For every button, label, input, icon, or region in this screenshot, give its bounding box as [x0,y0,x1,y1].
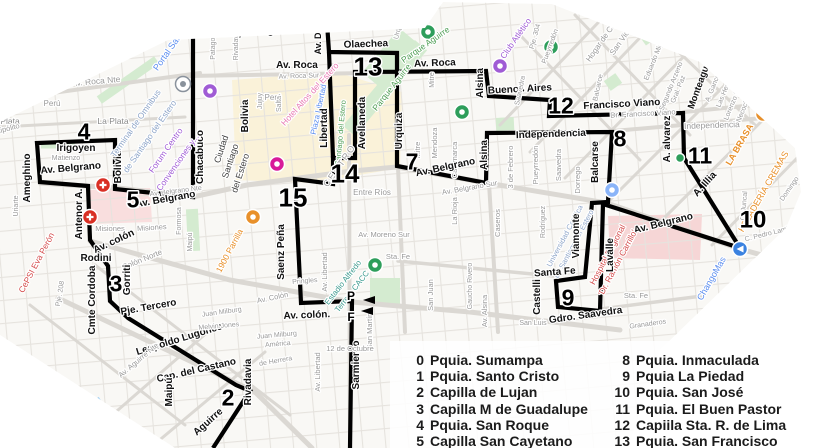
legend-item-number: 3 [398,401,424,417]
legend-item: 3Capilla M de Guadalupe [398,401,588,417]
route-stop-2[interactable]: 2 [222,384,235,410]
route-stop-10[interactable]: 10 [740,207,767,234]
poi-marker[interactable] [763,254,778,269]
poi-marker[interactable] [605,183,620,198]
route-stop-9[interactable]: 9 [562,284,575,310]
street-label: Av. colón. [283,309,330,322]
legend-item: 4Pquia. San Roque [398,417,588,433]
legend-item-name: Pquia. Inmaculada [636,352,759,368]
street-label: Mendoza [430,127,439,159]
street-label: Rodríguez [540,205,547,238]
poi-icon [358,6,373,21]
poi-dot-icon [767,258,773,264]
legend-item-name: Pquia. El Buen Pastor [636,401,781,417]
street-label: A. alvarez [662,116,673,163]
street-label: Urquiza [394,112,405,149]
legend-item-number: 0 [398,352,424,368]
street-label: Matienzo [52,155,81,162]
street-label: Rodini [80,253,111,264]
street-label: San Juan [426,279,435,311]
street-label: Antenor A. [74,188,85,239]
street-label: Patagonia [210,28,217,60]
legend-item: 8Pquia. Inmaculada [604,352,786,368]
street-label: Independencia [684,119,740,131]
legend-item-number: 2 [398,384,424,400]
street-label: Salta [276,96,283,112]
street-label: La Plata [97,116,128,126]
street-label: Av. Libertad [313,352,322,391]
legend: 0Pquia. Sumampa1Pquia. Santo Cristo2Capi… [398,352,818,448]
route-stop-5[interactable]: 5 [127,186,140,212]
street-label: Av. Roca [276,60,318,71]
legend-column-left: 0Pquia. Sumampa1Pquia. Santo Cristo2Capi… [398,352,588,448]
poi-marker[interactable] [203,84,218,99]
street-label: Rivadavia [233,30,240,61]
street-label: Lavalle [605,238,616,272]
legend-item-name: Capilla San Cayetano [430,433,572,448]
parada-p-label: P [347,289,355,303]
legend-item: 2Capilla de Lujan [398,384,588,400]
street-label: Ameghino [22,154,33,203]
legend-item: 10Pquia. San José [604,384,786,400]
map-screenshot: Ejto. ArgentinoOlaecheaAv. RocaAv. Roca … [0,0,820,448]
poi-marker[interactable] [246,210,261,225]
street-label: Av. Alsina [480,294,489,327]
street-label: Bolivia [240,99,251,132]
street-label: 3 de Febrero [506,146,515,189]
street-label: Saavedra [554,148,563,181]
street-label: Maipú [187,232,194,251]
legend-item-number: 1 [398,368,424,384]
street-label: Libertad [319,108,330,147]
legend-item-name: Capilla de Lujan [430,384,537,400]
street-label: Av. D. d. [313,19,323,54]
route-stop-12[interactable]: 12 [548,92,574,118]
street-label: Formosa [176,207,183,235]
street-label: Av. Libertad [320,252,329,291]
street-label: Av. Roca [414,57,456,69]
poi-dot-icon [274,161,280,167]
street-label: Castelli [532,279,543,315]
legend-item: 0Pquia. Sumampa [398,352,588,368]
poi-marker[interactable] [176,77,191,92]
street-label: Irigoyen [57,143,96,154]
street-label: Gaucho Rivero [467,263,474,310]
street-label: Avellaneda [357,96,368,149]
route-stop-3[interactable]: 3 [110,270,123,296]
street-label: Cmte Cordoba [87,265,98,334]
legend-item: 1Pquia. Santo Cristo [398,368,588,384]
street-label: Av. Moreno Sur [358,230,410,239]
poi-marker[interactable] [96,178,111,193]
poi-dot-icon [609,187,615,193]
street-label: Maipú [164,378,175,407]
legend-item-number: 5 [398,433,424,448]
legend-item-name: Pquia. Santo Cristo [430,368,559,384]
street-label: Saenz Peña [276,224,287,280]
route-stop-4[interactable]: 4 [78,118,91,144]
street-label: Caseros [493,209,502,237]
poi-dot-icon [497,63,503,69]
poi-dot-icon [250,214,256,220]
street-label: Sta. Fe [624,291,648,300]
legend-item-number: 11 [604,401,630,417]
street-label: 12 de Octubre [326,344,374,353]
legend-item-name: Pquia. San Francisco [636,433,778,448]
legend-item-number: 4 [398,417,424,433]
legend-item-number: 9 [604,368,630,384]
district-area [786,62,818,125]
street-label: Jujuy [257,92,264,109]
poi-icon [676,154,685,163]
poi-dot-icon [372,262,378,268]
legend-item-name: Pquia. Sumampa [430,352,543,368]
street-label: Mitre [429,72,436,88]
poi-marker[interactable] [455,105,470,120]
route-stop-11[interactable]: 11 [688,142,713,168]
poi-dot-icon [207,88,213,94]
poi-icon [756,107,771,122]
poi-marker[interactable] [358,6,373,21]
poi-marker[interactable] [756,107,771,122]
route-stop-15[interactable]: 15 [279,182,308,212]
terminal-icon [180,81,186,87]
route-stop-13[interactable]: 13 [354,51,383,81]
poi-marker[interactable] [368,258,383,273]
poi-marker[interactable] [676,154,685,163]
street-label: Alsina [479,140,490,170]
street-label: Rivadavia [243,358,254,405]
poi-dot-icon [362,10,368,16]
street-label: Sta. Fe [386,252,410,261]
poi-marker[interactable] [270,157,285,172]
street-label: Entre Ríos [353,188,391,197]
street-label: Nte. [135,34,150,45]
legend-item-number: 10 [604,384,630,400]
poi-dot-icon [459,109,465,115]
street-label: San Luis [519,320,547,327]
street-label: Alsina [475,68,486,98]
parada-f-label: F [347,310,354,324]
street-label: Av. Roca Sur [279,72,320,80]
legend-item: 9Pquia La Piedad [604,368,786,384]
poi-icon [763,254,778,269]
street-label: Perú [44,99,61,108]
legend-item: 13Pquia. San Francisco [604,433,786,448]
legend-item: 5Capilla San Cayetano [398,433,588,448]
legend-item-number: 8 [604,352,630,368]
route-stop-8[interactable]: 8 [614,125,627,151]
legend-item-name: Pquia La Piedad [636,368,744,384]
street-label: Uriarte [13,195,20,216]
legend-item-name: Capiila Sta. R. de Lima [636,417,786,433]
legend-item-name: Capilla M de Guadalupe [430,401,588,417]
street-label: La Rioja [450,196,459,224]
street-label: Dorrego [573,166,582,193]
poi-dot-icon [760,111,766,117]
route-stop-7[interactable]: 7 [406,148,419,174]
route-stop-6[interactable]: 6 [285,5,296,26]
legend-item-name: Pquia. San José [636,384,743,400]
street-label: Viamonte [571,213,582,258]
street-label: Balcarse [590,141,601,183]
legend-item-number: 12 [604,417,630,433]
street-label: Gorriti [122,265,133,296]
legend-item: 11Pquia. El Buen Pastor [604,401,786,417]
street-label: Pueyrredón [531,146,540,185]
legend-item-name: Pquia. San Roque [430,417,549,433]
poi-marker[interactable] [733,242,748,257]
legend-column-right: 8Pquia. Inmaculada9Pquia La Piedad10Pqui… [604,352,786,448]
street-label: Olaechea [343,38,388,51]
route-stop-14[interactable]: 14 [331,158,360,188]
legend-item-number: 13 [604,433,630,448]
legend-item: 12Capiila Sta. R. de Lima [604,417,786,433]
